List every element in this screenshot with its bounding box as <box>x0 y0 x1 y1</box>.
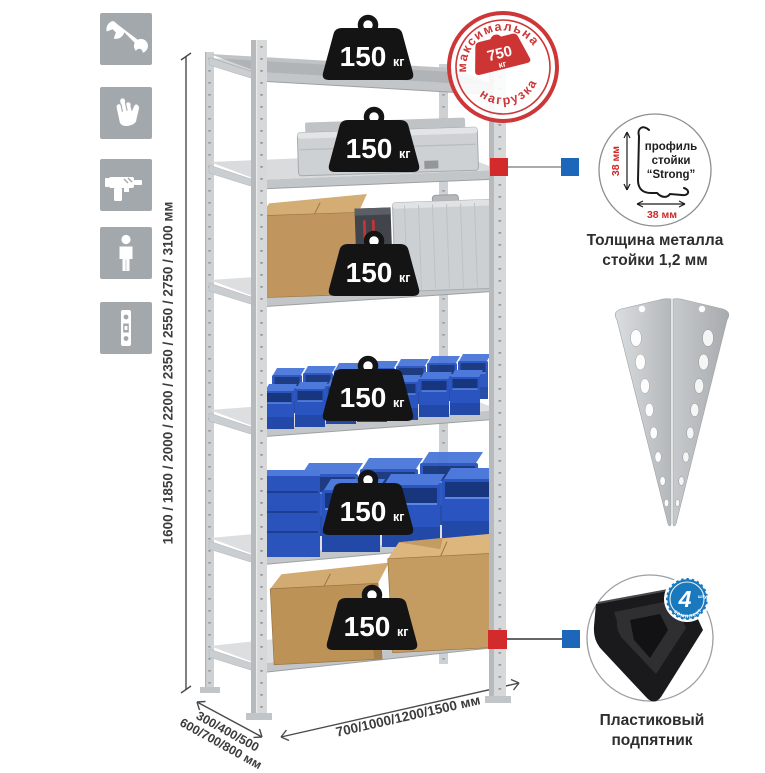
svg-text:38 мм: 38 мм <box>610 146 622 176</box>
connector-top <box>490 158 579 176</box>
svg-text:профиль: профиль <box>645 141 698 153</box>
corner-post-art <box>615 299 729 526</box>
svg-text:4: 4 <box>678 586 692 612</box>
infographic-canvas: 150 кг 150 кг 150 кг 150 кг <box>0 0 765 765</box>
weight-badge: 150 кг <box>329 110 420 173</box>
height-dimension-label: 1600 / 1850 / 2000 / 2200 / 2350 / 2550 … <box>161 202 176 545</box>
large-bin-crate <box>262 470 320 557</box>
connector-bottom <box>488 630 580 649</box>
post-profile-circle: 38 мм 38 мм профиль стойки “Strong” <box>599 114 711 226</box>
svg-text:кг: кг <box>393 55 404 69</box>
svg-text:150: 150 <box>344 611 391 642</box>
post-back-left <box>200 52 220 693</box>
connector-bottom-red-square <box>488 630 507 649</box>
height-dimension-line <box>181 53 191 693</box>
side-rails <box>209 57 257 672</box>
connector-bottom-blue-square <box>562 630 580 648</box>
shelving-scene: 150 кг 150 кг 150 кг 150 кг <box>0 0 765 765</box>
svg-text:кг: кг <box>393 510 404 524</box>
plastic-foot-caption: Пластиковый подпятник <box>557 711 747 751</box>
svg-text:кг: кг <box>399 147 410 161</box>
svg-text:150: 150 <box>340 382 387 413</box>
svg-text:кг: кг <box>393 396 404 410</box>
svg-text:стойки: стойки <box>652 155 691 167</box>
weight-badge: 150 кг <box>323 18 414 81</box>
svg-text:150: 150 <box>346 133 393 164</box>
svg-text:38 мм: 38 мм <box>647 209 677 221</box>
connector-top-blue-square <box>561 158 579 176</box>
svg-text:150: 150 <box>340 496 387 527</box>
metal-thickness-caption: Толщина металла стойки 1,2 мм <box>560 231 750 271</box>
svg-text:“Strong”: “Strong” <box>647 169 696 181</box>
svg-text:150: 150 <box>340 41 387 72</box>
svg-text:кг: кг <box>397 625 408 639</box>
svg-text:150: 150 <box>346 257 393 288</box>
plastic-foot-circle: 4 штуки в комплекте <box>587 575 713 702</box>
post-front-left <box>246 40 272 720</box>
connector-top-red-square <box>490 158 508 176</box>
svg-text:штуки: штуки <box>698 594 712 599</box>
max-load-stamp: максимальная нагрузка 750 кг <box>438 2 569 133</box>
svg-text:кг: кг <box>399 271 410 285</box>
